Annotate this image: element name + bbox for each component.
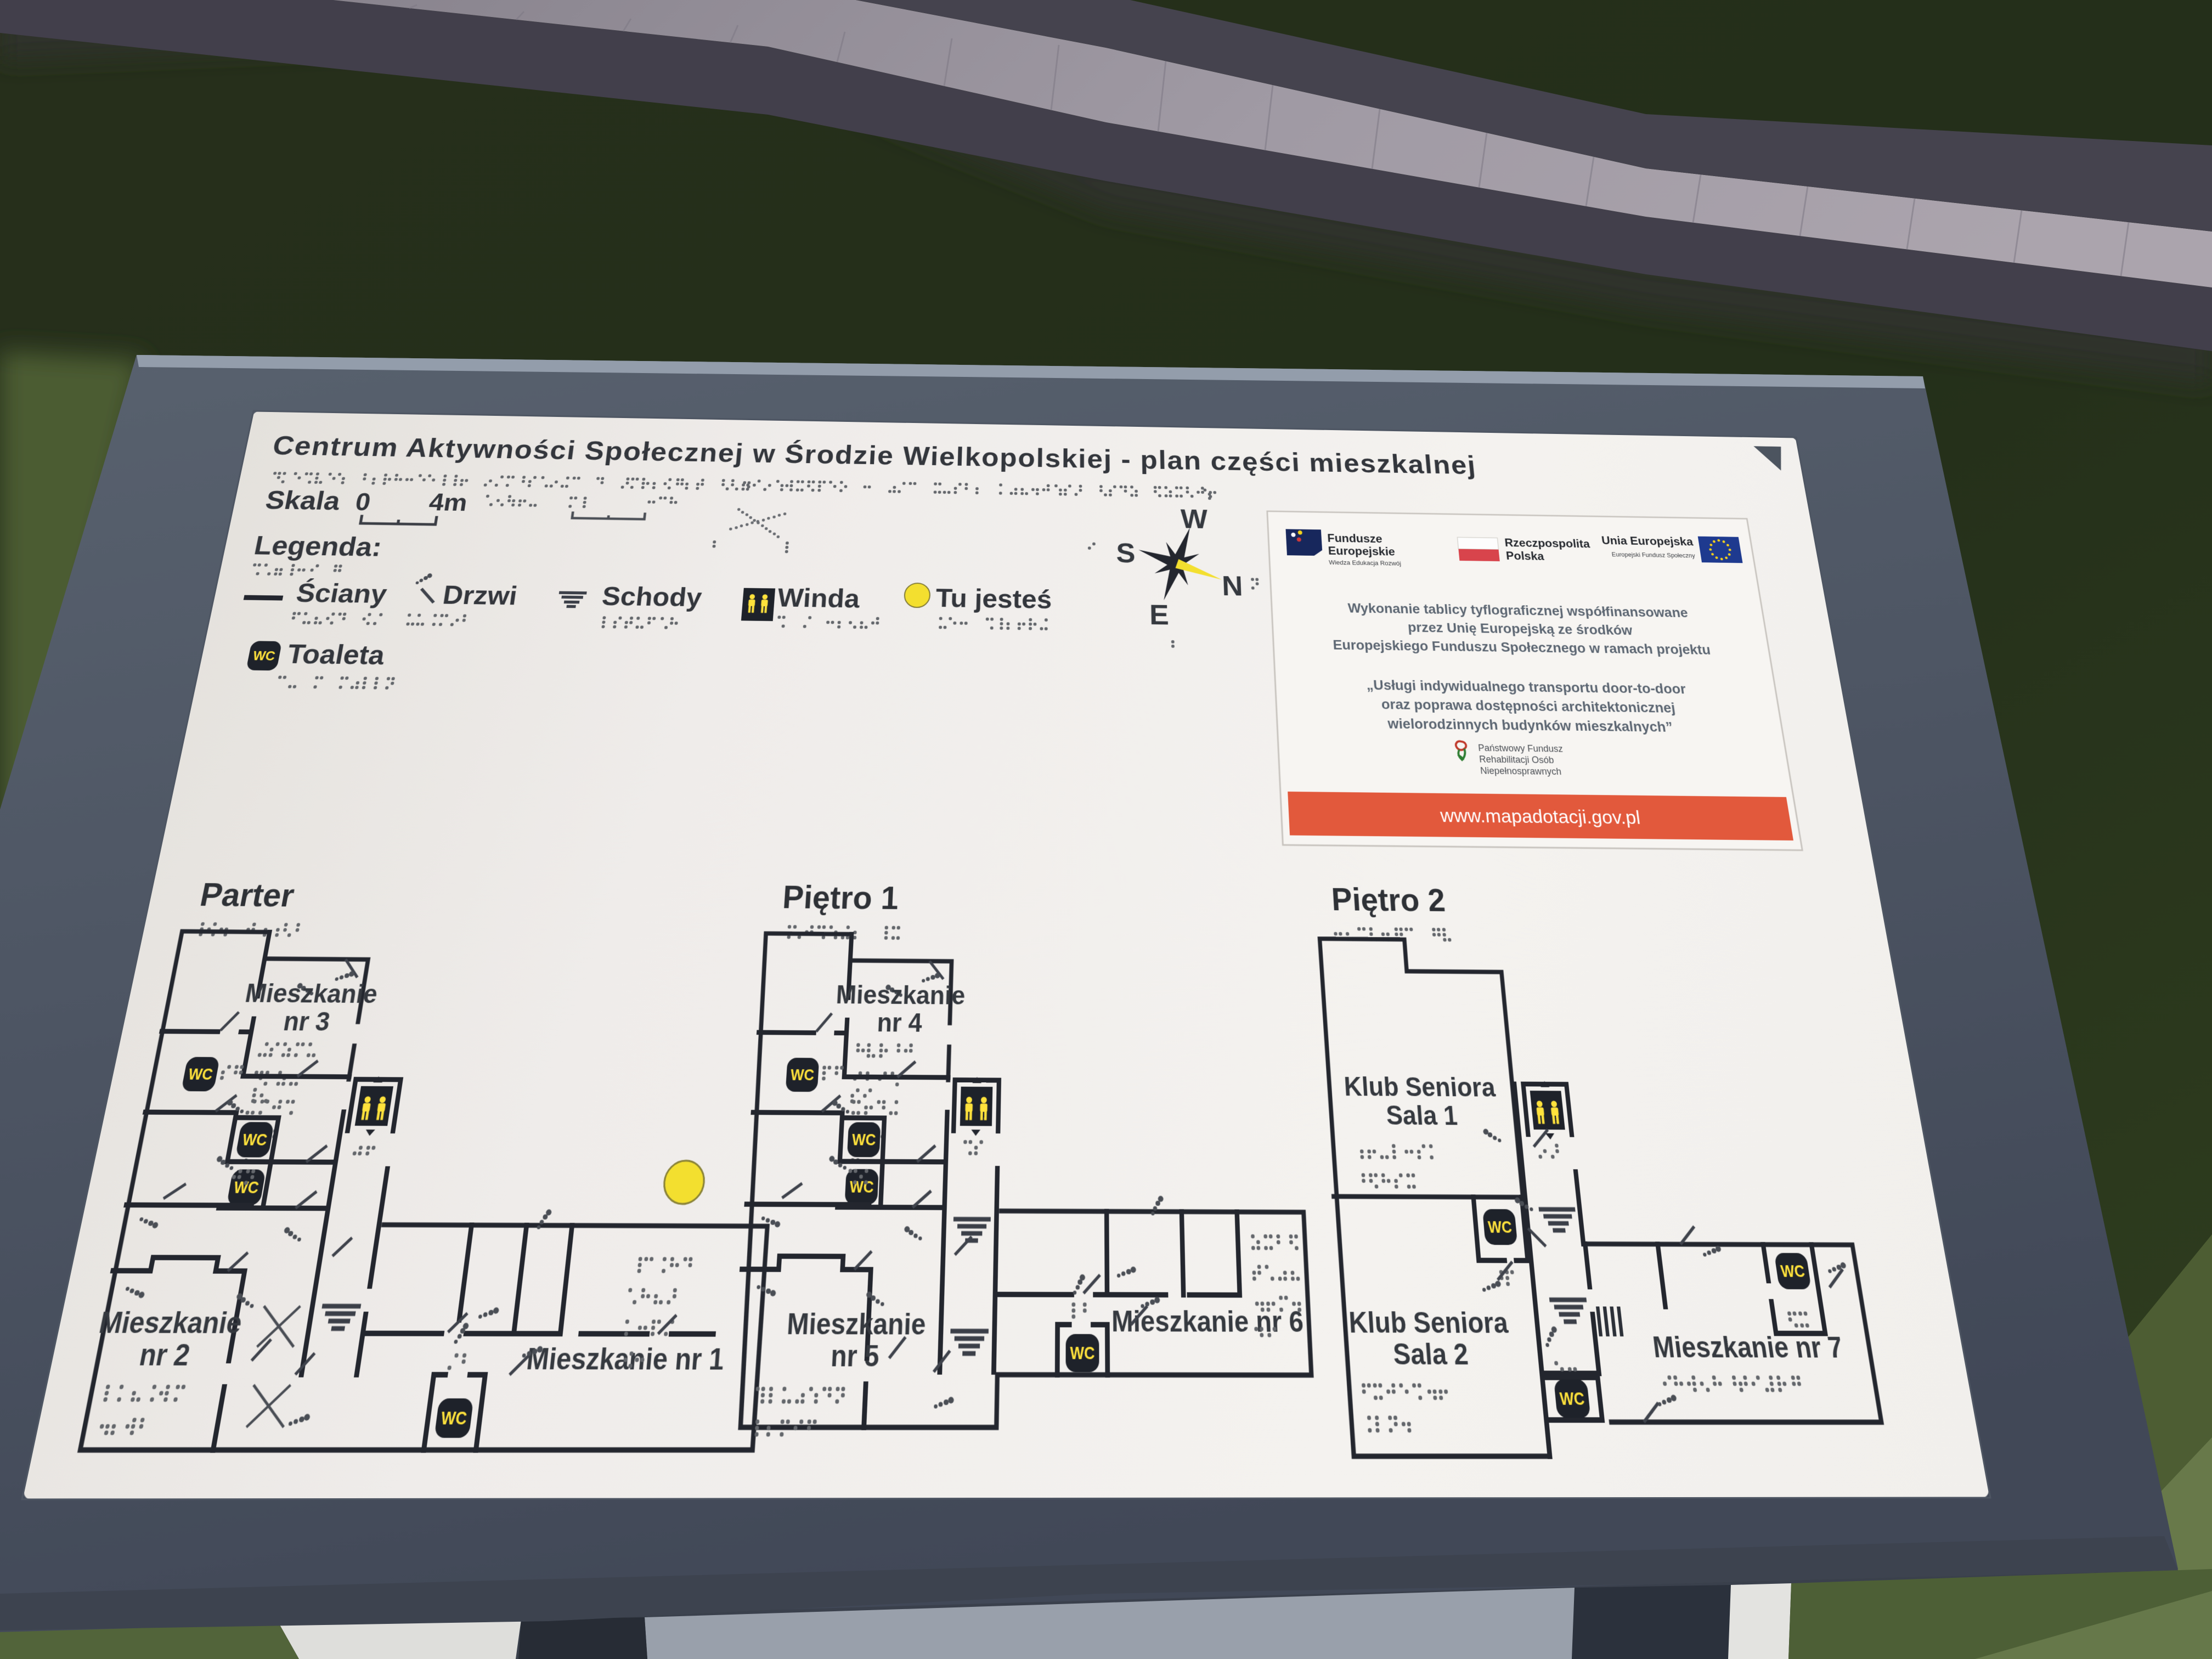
svg-text:Piętro 2: Piętro 2 — [1330, 882, 1447, 918]
svg-text:WC: WC — [1487, 1219, 1513, 1237]
svg-text:WC: WC — [1559, 1390, 1585, 1409]
svg-text:nr 2: nr 2 — [137, 1338, 193, 1372]
svg-text:Niepełnosprawnych: Niepełnosprawnych — [1480, 766, 1562, 777]
svg-text:WC: WC — [241, 1132, 268, 1149]
svg-text:4m: 4m — [427, 489, 470, 516]
svg-text:przez Unię Europejską ze środk: przez Unię Europejską ze środków — [1407, 619, 1633, 637]
svg-text:Schody: Schody — [600, 581, 703, 612]
svg-text:WC: WC — [790, 1067, 815, 1084]
svg-text:Fundusze: Fundusze — [1327, 532, 1383, 545]
svg-text:Winda: Winda — [776, 583, 861, 613]
svg-text:Unia Europejska: Unia Europejska — [1601, 535, 1694, 549]
svg-text:Parter: Parter — [197, 877, 297, 914]
svg-text:Mieszkanie: Mieszkanie — [786, 1308, 927, 1341]
svg-text:Europejskie: Europejskie — [1328, 545, 1395, 558]
svg-text:0: 0 — [353, 489, 373, 516]
svg-text:Mieszkanie: Mieszkanie — [243, 979, 380, 1008]
svg-text:Klub Seniora: Klub Seniora — [1343, 1072, 1497, 1102]
svg-text:www.mapadotacji.gov.pl: www.mapadotacji.gov.pl — [1439, 805, 1641, 828]
svg-text:Skala: Skala — [263, 485, 343, 515]
svg-text:WC: WC — [1070, 1345, 1094, 1363]
svg-text:WC: WC — [187, 1066, 214, 1084]
svg-text:S: S — [1116, 538, 1136, 569]
svg-text:nr 4: nr 4 — [876, 1008, 923, 1037]
svg-text:WC: WC — [252, 649, 276, 663]
svg-text:Legenda:: Legenda: — [252, 531, 385, 562]
svg-text:Klub Seniora: Klub Seniora — [1348, 1306, 1509, 1339]
svg-text:WC: WC — [849, 1179, 874, 1197]
svg-text:W: W — [1180, 504, 1208, 534]
svg-text:Drzwi: Drzwi — [441, 580, 519, 611]
svg-text:Rzeczpospolita: Rzeczpospolita — [1504, 537, 1592, 551]
svg-text:Ściany: Ściany — [294, 578, 389, 609]
svg-text:Polska: Polska — [1505, 550, 1545, 563]
svg-text:Wiedza Edukacja Rozwój: Wiedza Edukacja Rozwój — [1329, 560, 1402, 567]
svg-text:Mieszkanie nr 6: Mieszkanie nr 6 — [1111, 1305, 1304, 1338]
svg-text:WC: WC — [851, 1132, 876, 1149]
svg-text:Toaleta: Toaleta — [285, 639, 388, 670]
svg-text:Państwowy Fundusz: Państwowy Fundusz — [1478, 743, 1564, 754]
svg-text:Mieszkanie: Mieszkanie — [97, 1306, 245, 1340]
svg-text:nr 3: nr 3 — [281, 1007, 332, 1036]
svg-text:Europejski Fundusz Społeczny: Europejski Fundusz Społeczny — [1611, 552, 1696, 559]
svg-text:nr 5: nr 5 — [830, 1339, 880, 1373]
svg-text:Sala 1: Sala 1 — [1385, 1101, 1459, 1131]
svg-text:Mieszkanie: Mieszkanie — [836, 980, 966, 1010]
svg-text:Tu jesteś: Tu jesteś — [935, 583, 1052, 614]
svg-text:Mieszkanie nr 7: Mieszkanie nr 7 — [1651, 1331, 1845, 1364]
svg-text:Rehabilitacji Osób: Rehabilitacji Osób — [1479, 754, 1555, 766]
svg-text:E: E — [1149, 600, 1170, 631]
svg-text:WC: WC — [1780, 1263, 1806, 1281]
svg-text:Centrum Aktywności Społecznej: Centrum Aktywności Społecznej w Środzie … — [270, 431, 1477, 480]
svg-text:WC: WC — [440, 1409, 468, 1429]
svg-text:Sala 2: Sala 2 — [1392, 1338, 1470, 1370]
svg-text:N: N — [1221, 571, 1243, 602]
svg-text:Piętro 1: Piętro 1 — [781, 879, 899, 917]
